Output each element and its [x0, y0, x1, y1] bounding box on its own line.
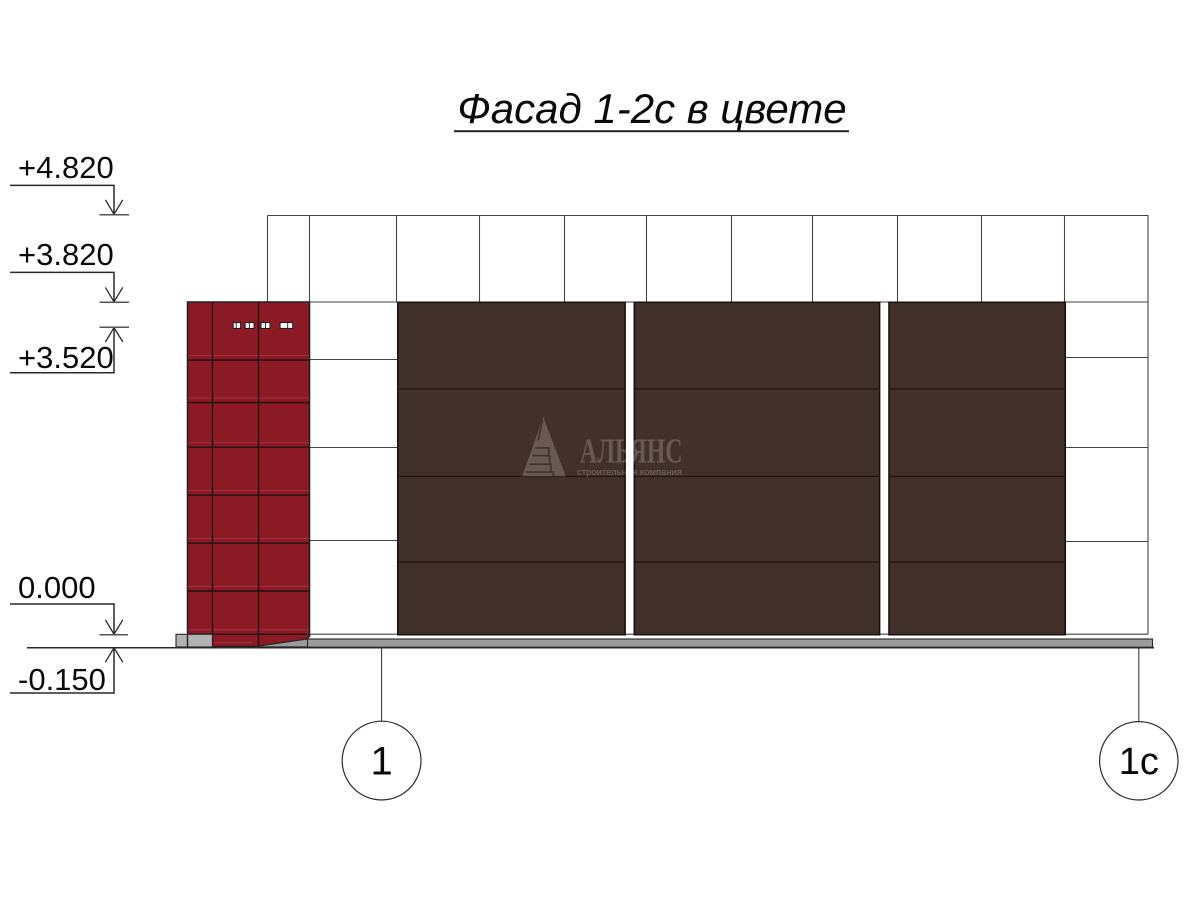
svg-text:+3.520: +3.520: [18, 340, 114, 375]
svg-text:строительная компания: строительная компания: [577, 467, 682, 477]
svg-text:Фасад 1-2с в цвете: Фасад 1-2с в цвете: [457, 85, 846, 132]
svg-text:0.000: 0.000: [18, 570, 96, 605]
svg-text:АЛЬЯНС: АЛЬЯНС: [580, 432, 683, 471]
svg-text:-0.150: -0.150: [18, 662, 106, 697]
svg-text:+4.820: +4.820: [18, 150, 114, 185]
svg-text:1: 1: [370, 740, 392, 784]
svg-text:+3.820: +3.820: [18, 237, 114, 272]
svg-text:1с: 1с: [1119, 741, 1159, 783]
